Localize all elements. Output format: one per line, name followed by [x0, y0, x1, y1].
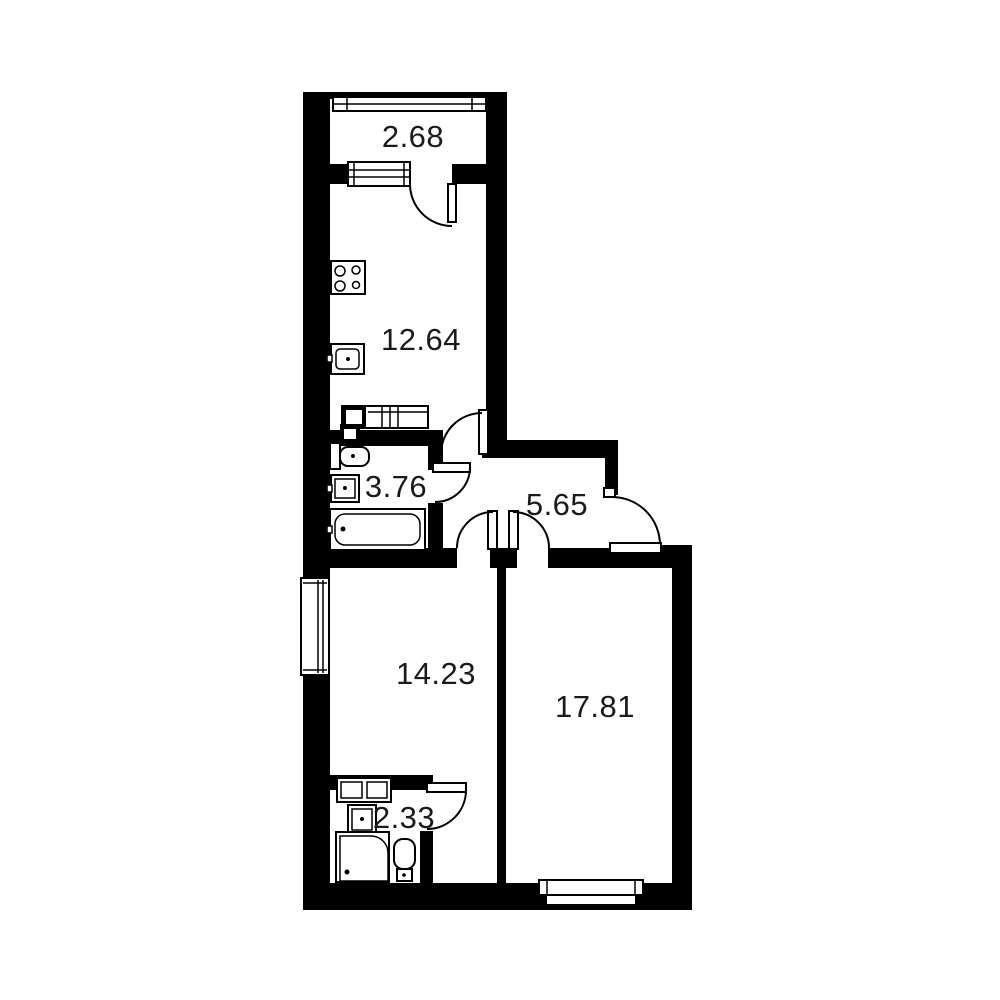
room-left-window: [301, 578, 329, 675]
kitchen-door: [441, 410, 488, 454]
washer-cabinet: [337, 778, 391, 802]
floor-plan-svg: 2.68 12.64 3.76 5.65 14.23 17.81 2.33: [0, 0, 1000, 1000]
kitchen-counter: [342, 406, 428, 428]
kitchen-balcony-window: [348, 162, 410, 186]
room-label-kitchen: 12.64: [381, 322, 461, 357]
balcony-door: [410, 184, 456, 226]
room-label-bathroom: 3.76: [365, 469, 427, 504]
entrance-door: [604, 488, 661, 553]
shower-icon: [336, 832, 389, 882]
bathroom-door: [433, 463, 470, 502]
bathtub-icon: [327, 509, 425, 550]
toilet-icon: [330, 443, 369, 469]
room-left-door: [457, 511, 497, 549]
balcony-glazing-window: [333, 97, 486, 111]
room-right-window: [539, 880, 643, 905]
room-label-room-left: 14.23: [396, 656, 476, 691]
room-label-room-right: 17.81: [555, 689, 635, 724]
floor-plan-page: 2.68 12.64 3.76 5.65 14.23 17.81 2.33: [0, 0, 1000, 1000]
kitchen-sink-icon: [327, 344, 364, 374]
room-label-balcony: 2.68: [382, 119, 444, 154]
room-label-shower-room: 2.33: [373, 800, 435, 835]
bathroom-sink-icon: [327, 475, 359, 502]
shower-sink-icon: [348, 805, 376, 834]
stove-icon: [331, 261, 365, 294]
shower-toilet-icon: [394, 839, 415, 881]
room-label-hallway: 5.65: [526, 487, 588, 522]
